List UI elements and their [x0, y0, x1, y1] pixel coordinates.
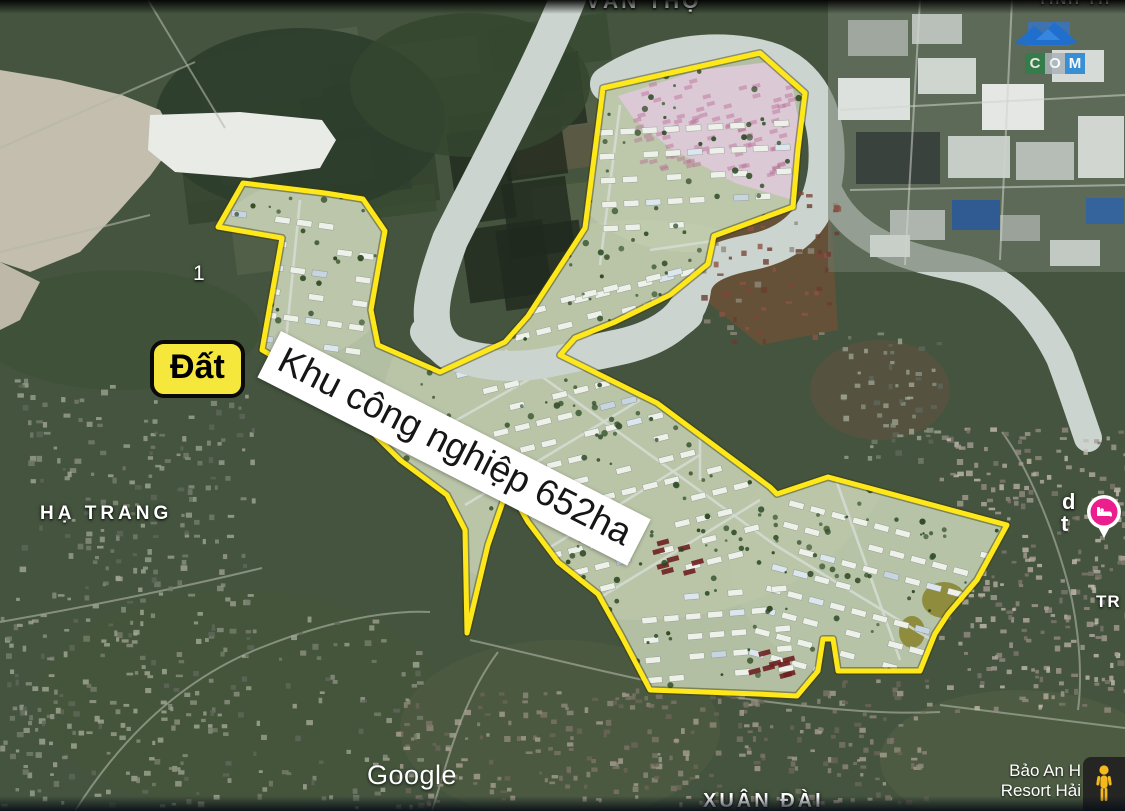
place-label-van-tho: VĂN THỌ	[586, 0, 702, 14]
map-viewport[interactable]: VĂN THỌ TỈNH TH HẠ TRANG XUÂN ĐÀI 1 d t …	[0, 0, 1125, 811]
place-label-xuan-dai: XUÂN ĐÀI	[703, 790, 824, 811]
resort-name-line1: Bảo An H	[1001, 761, 1081, 781]
watermark-letters: C O M	[1025, 53, 1085, 74]
logo-mountain-icon	[1012, 20, 1082, 46]
road-number-label: 1	[193, 262, 205, 286]
satellite-basemap	[0, 0, 1125, 811]
resort-name-line2: Resort Hải	[1001, 781, 1081, 801]
partial-label-tr: TR	[1096, 592, 1121, 612]
resort-poi-label: Bảo An H Resort Hải	[1001, 761, 1081, 801]
google-logo[interactable]: Google	[367, 760, 457, 791]
place-label-tinh-partial: TỈNH TH	[1038, 0, 1111, 8]
watermark-logo: C O M	[1012, 20, 1085, 74]
watermark-letter-o: O	[1045, 53, 1065, 74]
land-tag: Đất	[150, 340, 245, 398]
place-label-ha-trang: HẠ TRANG	[40, 503, 172, 525]
watermark-letter-m: M	[1065, 53, 1085, 74]
pegman-button[interactable]	[1083, 757, 1125, 811]
watermark-letter-c: C	[1025, 53, 1045, 74]
partial-label-t: t	[1061, 511, 1068, 537]
pegman-icon	[1094, 765, 1114, 803]
lodging-pin[interactable]	[1085, 494, 1123, 540]
